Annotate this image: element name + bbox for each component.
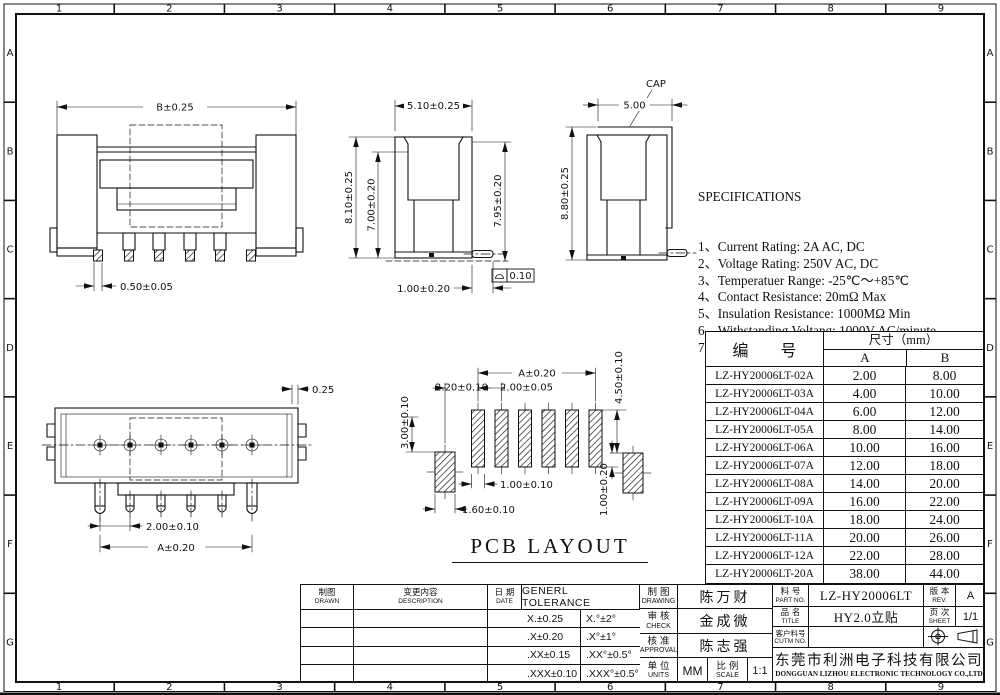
date-header-en: DATE — [496, 598, 513, 606]
parts-table-header: 编 号 尺寸（mm） A B — [706, 332, 983, 367]
part-number-column-header: 编 号 — [706, 332, 824, 366]
scale-value: 1:1 — [748, 658, 773, 683]
table-row: LZ-HY20006LT-08A14.0020.00 — [706, 475, 983, 493]
dim-a-cell: 22.00 — [824, 547, 906, 564]
dim-b-cell: 14.00 — [906, 421, 983, 438]
cap-view: CAP 5.00 8.80±0.25 — [560, 79, 696, 260]
dim-front-pin: 0.50±0.05 — [120, 282, 173, 293]
dim-pad-side-w: 1.60±0.10 — [462, 505, 515, 516]
sheet-value: 1/1 — [956, 607, 985, 627]
description-header-en: DESCRIPTION — [398, 598, 442, 606]
scale-label-cn: 比 例 — [716, 661, 738, 672]
revision-cell — [488, 647, 522, 665]
dim-side-flatness: 0.10 — [509, 271, 531, 282]
dim-b-cell: 8.00 — [906, 367, 983, 384]
part-number-cell: LZ-HY20006LT-20A — [706, 565, 824, 583]
dim-front-width: B±0.25 — [156, 103, 194, 114]
dim-pad-right-off: 1.00±0.20 — [599, 463, 610, 516]
side-view: 5.10±0.25 8.10±0.25 7.00±0.20 7.95±0.20 … — [344, 99, 534, 296]
table-row: LZ-HY20006LT-04A6.0012.00 — [706, 403, 983, 421]
dim-pad-pitch: 2.00±0.05 — [500, 383, 553, 394]
first-angle-projection-icon — [924, 627, 983, 646]
rev-label: 版 本 REV. — [924, 585, 956, 607]
dim-pad-w: 1.00±0.10 — [500, 480, 553, 491]
tolerance-cell: .XXX°±0.5° — [581, 665, 640, 683]
revision-cell — [488, 628, 522, 646]
dim-b-cell: 12.00 — [906, 403, 983, 420]
scale-label: 比 例 SCALE — [708, 658, 748, 683]
spec-line: 4、Contact Resistance: 20mΩ Max — [698, 289, 990, 306]
company-cell: 东莞市利洲电子科技有限公司 DONGGUAN LIZHOU ELECTRONIC… — [773, 648, 985, 683]
tolerance-cell: X.±0.25 — [522, 610, 581, 628]
drawing-sheet: 112233445566778899AABBCCDDEEFFGG B±0.25 — [0, 0, 1000, 695]
dim-side-inner: 7.00±0.20 — [367, 179, 378, 232]
units-label: 单 位 UNITS — [640, 658, 678, 683]
description-header: 变更内容 DESCRIPTION — [354, 585, 488, 610]
dim-side-left: 8.10±0.25 — [344, 171, 355, 224]
units-value: MM — [678, 658, 708, 683]
dim-a-cell: 18.00 — [824, 511, 906, 528]
dim-top-pitch: 2.00±0.10 — [146, 522, 199, 533]
title-label-cn: 品 名 — [781, 608, 801, 618]
units-label-en: UNITS — [648, 672, 669, 680]
customer-no-value — [809, 627, 924, 648]
sheet-label-cn: 页 次 — [930, 608, 950, 618]
part-no-label: 料 号 PART NO. — [773, 585, 809, 607]
dim-a-cell: 2.00 — [824, 367, 906, 384]
dim-a-cell: 4.00 — [824, 385, 906, 402]
scale-label-en: SCALE — [716, 672, 739, 680]
size-column-header: 尺寸（mm） — [824, 332, 983, 350]
dim-cap-left: 8.80±0.25 — [560, 167, 571, 220]
parts-table-body: LZ-HY20006LT-02A2.008.00LZ-HY20006LT-03A… — [706, 367, 983, 583]
revision-cell — [354, 628, 488, 646]
dim-b-cell: 26.00 — [906, 529, 983, 546]
title-value: HY2.0立贴 — [809, 607, 924, 627]
table-row: LZ-HY20006LT-11A20.0026.00 — [706, 529, 983, 547]
revision-cell — [301, 628, 354, 646]
pcb-layout-caption: PCB LAYOUT — [452, 534, 648, 563]
part-number-cell: LZ-HY20006LT-09A — [706, 493, 824, 510]
dim-pad-right-h: 4.50±0.10 — [614, 351, 625, 404]
part-number-cell: LZ-HY20006LT-04A — [706, 403, 824, 420]
customer-no-label-en: CUTM NO. — [774, 638, 806, 646]
dim-pad-left-h: 3.00±0.10 — [400, 396, 411, 449]
part-number-cell: LZ-HY20006LT-08A — [706, 475, 824, 492]
projection-symbol-cell — [924, 627, 985, 648]
dim-b-cell: 28.00 — [906, 547, 983, 564]
units-label-cn: 单 位 — [647, 661, 669, 672]
spec-line: 1、Current Rating: 2A AC, DC — [698, 239, 990, 256]
drawing-name: 陈万财 — [678, 585, 773, 609]
customer-no-label-cn: 客户料号 — [776, 629, 806, 638]
part-no-label-cn: 料 号 — [781, 587, 801, 597]
part-number-cell: LZ-HY20006LT-05A — [706, 421, 824, 438]
dim-pad-span: A±0.20 — [518, 369, 556, 380]
pcb-top-view: 0.25 2.00±0.10 A±0.20 — [42, 385, 334, 554]
table-row: LZ-HY20006LT-07A12.0018.00 — [706, 457, 983, 475]
part-number-cell: LZ-HY20006LT-11A — [706, 529, 824, 546]
revision-cell — [301, 647, 354, 665]
rev-label-cn: 版 本 — [930, 587, 950, 597]
dim-a-cell: 6.00 — [824, 403, 906, 420]
company-name-en: DONGGUAN LIZHOU ELECTRONIC TECHNOLOGY CO… — [775, 670, 982, 679]
drawn-header-cn: 制图 — [318, 588, 335, 598]
date-header: 日 期 DATE — [488, 585, 522, 610]
dim-side-right: 7.95±0.20 — [493, 175, 504, 228]
rev-value: A — [956, 585, 985, 607]
tolerance-cell: .XXX±0.10 — [522, 665, 581, 683]
drawing-label-cn: 制 图 — [647, 587, 669, 598]
revision-cell — [488, 610, 522, 628]
part-number-cell: LZ-HY20006LT-12A — [706, 547, 824, 564]
spec-line: 5、Insulation Resistance: 1000MΩ Min — [698, 306, 990, 323]
part-number-cell: LZ-HY20006LT-06A — [706, 439, 824, 456]
dim-a-cell: 10.00 — [824, 439, 906, 456]
rev-label-en: REV. — [932, 597, 947, 605]
front-view: B±0.25 0.50±0.05 — [50, 99, 303, 293]
parts-table: 编 号 尺寸（mm） A B LZ-HY20006LT-02A2.008.00L… — [705, 331, 984, 584]
revision-cell — [354, 610, 488, 628]
specifications-title: SPECIFICATIONS — [698, 189, 990, 206]
title-label: 品 名 TITLE — [773, 607, 809, 627]
revision-rows-grid — [301, 610, 522, 683]
part-number-cell: LZ-HY20006LT-07A — [706, 457, 824, 474]
table-row: LZ-HY20006LT-09A16.0022.00 — [706, 493, 983, 511]
title-label-en: TITLE — [782, 618, 800, 626]
dim-side-bottom: 1.00±0.20 — [397, 284, 450, 295]
part-number-cell: LZ-HY20006LT-03A — [706, 385, 824, 402]
dim-a-cell: 20.00 — [824, 529, 906, 546]
dim-a-cell: 14.00 — [824, 475, 906, 492]
approval-label-en: APPROVAL — [640, 647, 677, 655]
sheet-label: 页 次 SHEET — [924, 607, 956, 627]
table-row: LZ-HY20006LT-05A8.0014.00 — [706, 421, 983, 439]
revision-cell — [488, 665, 522, 683]
profile-tolerance-icon — [496, 275, 504, 279]
part-no-value: LZ-HY20006LT — [809, 585, 924, 607]
description-header-cn: 变更内容 — [403, 588, 437, 598]
dim-b-cell: 16.00 — [906, 439, 983, 456]
company-name-cn: 东莞市利洲电子科技有限公司 — [775, 652, 983, 670]
dim-side-top: 5.10±0.25 — [407, 101, 460, 112]
dim-top-offset: 0.25 — [312, 385, 334, 396]
check-label-cn: 审 核 — [647, 611, 669, 622]
dim-b-cell: 10.00 — [906, 385, 983, 402]
dim-b-cell: 20.00 — [906, 475, 983, 492]
title-block: 制图 DRAWN 变更内容 DESCRIPTION 日 期 DATE GENER… — [300, 584, 984, 682]
tolerance-header: GENERL TOLERANCE — [522, 585, 640, 610]
table-row: LZ-HY20006LT-10A18.0024.00 — [706, 511, 983, 529]
dim-a-cell: 38.00 — [824, 565, 906, 583]
cap-label: CAP — [646, 79, 666, 90]
revision-cell — [301, 665, 354, 683]
part-number-cell: LZ-HY20006LT-10A — [706, 511, 824, 528]
spec-line: 2、Voltage Rating: 250V AC, DC — [698, 256, 990, 273]
dim-a-cell: 16.00 — [824, 493, 906, 510]
revision-cell — [301, 610, 354, 628]
drawn-header: 制图 DRAWN — [301, 585, 354, 610]
dim-top-span: A±0.20 — [157, 543, 195, 554]
dim-cap-top: 5.00 — [623, 101, 645, 112]
dim-a-cell: 12.00 — [824, 457, 906, 474]
revision-cell — [354, 647, 488, 665]
dim-b-cell: 44.00 — [906, 565, 983, 583]
pad-layout-view: A±0.20 2.20±0.10 2.00±0.05 4.50±0.10 3.0… — [400, 351, 651, 516]
part-no-label-en: PART NO. — [776, 597, 806, 605]
dim-b-cell: 24.00 — [906, 511, 983, 528]
table-row: LZ-HY20006LT-06A10.0016.00 — [706, 439, 983, 457]
drawing-label: 制 图 DRAWING — [640, 585, 678, 609]
tolerance-cell: .X°±1° — [581, 628, 640, 646]
tolerance-cell: X.°±2° — [581, 610, 640, 628]
sheet-label-en: SHEET — [929, 618, 951, 626]
customer-no-label: 客户料号 CUTM NO. — [773, 627, 809, 648]
table-row: LZ-HY20006LT-03A4.0010.00 — [706, 385, 983, 403]
approval-name: 陈志强 — [678, 634, 773, 658]
revision-cell — [354, 665, 488, 683]
tolerance-cell: .XX±0.15 — [522, 647, 581, 665]
check-label-en: CHECK — [646, 623, 671, 631]
table-row: LZ-HY20006LT-02A2.008.00 — [706, 367, 983, 385]
drawn-header-en: DRAWN — [315, 598, 339, 606]
check-name: 金成微 — [678, 609, 773, 634]
check-label: 审 核 CHECK — [640, 609, 678, 634]
table-row: LZ-HY20006LT-12A22.0028.00 — [706, 547, 983, 565]
spec-line: 3、Temperatuer Range: -25℃～+85℃ — [698, 273, 990, 290]
tolerance-grid: X.±0.25X.°±2°.X±0.20.X°±1°.XX±0.15.XX°±0… — [522, 610, 640, 683]
part-number-cell: LZ-HY20006LT-02A — [706, 367, 824, 384]
table-row: LZ-HY20006LT-20A38.0044.00 — [706, 565, 983, 583]
dim-b-cell: 22.00 — [906, 493, 983, 510]
dim-a-cell: 8.00 — [824, 421, 906, 438]
approval-label: 核 准 APPROVAL — [640, 634, 678, 658]
column-a-header: A — [824, 350, 907, 366]
drawing-label-en: DRAWING — [642, 598, 676, 606]
approval-label-cn: 核 准 — [647, 636, 669, 647]
tolerance-cell: .XX°±0.5° — [581, 647, 640, 665]
column-b-header: B — [907, 350, 983, 366]
dim-b-cell: 18.00 — [906, 457, 983, 474]
tolerance-cell: .X±0.20 — [522, 628, 581, 646]
date-header-cn: 日 期 — [495, 588, 515, 598]
